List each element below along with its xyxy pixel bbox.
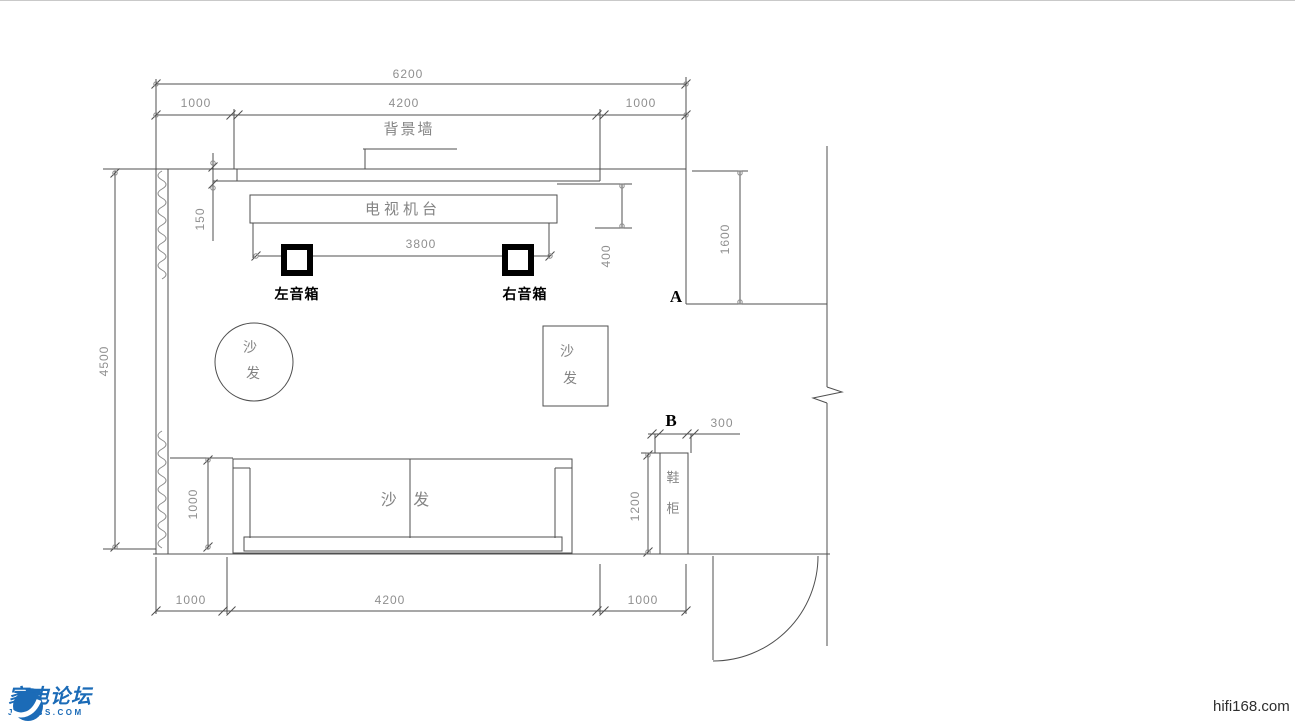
floor-plan-page: 6200 1000 4200 1000 4500 150 3800 400 16… bbox=[0, 0, 1295, 725]
dim-bgwall-offset: 150 bbox=[193, 207, 207, 230]
label-main-sofa: 沙 发 bbox=[381, 491, 435, 509]
label-background-wall: 背景墙 bbox=[383, 121, 434, 138]
dim-bottom-left: 1000 bbox=[176, 593, 207, 607]
dim-sofa-depth: 1000 bbox=[186, 489, 200, 520]
label-square-sofa-2: 发 bbox=[563, 370, 577, 386]
dim-speaker-offset: 400 bbox=[599, 244, 613, 267]
label-shoe-cabinet-2: 柜 bbox=[666, 501, 679, 516]
dim-top-right: 1000 bbox=[626, 96, 657, 110]
dim-bottom-center: 4200 bbox=[375, 593, 406, 607]
label-shoe-cabinet-1: 鞋 bbox=[666, 470, 679, 485]
dim-top-center: 4200 bbox=[389, 96, 420, 110]
watermark-text: hifi168.com bbox=[1213, 698, 1290, 715]
dim-cabinet-width: 300 bbox=[710, 416, 733, 430]
wall-break-symbol bbox=[813, 387, 842, 403]
jd-bbs-swirl-icon bbox=[8, 687, 48, 725]
round-sofa bbox=[215, 323, 293, 401]
marker-a: A bbox=[670, 287, 683, 306]
dim-cabinet-length: 1200 bbox=[628, 491, 642, 522]
label-square-sofa-1: 沙 bbox=[560, 343, 574, 359]
dim-room-depth: 4500 bbox=[97, 346, 111, 377]
label-round-sofa-1: 沙 bbox=[243, 339, 257, 355]
dim-speaker-span: 3800 bbox=[406, 237, 437, 251]
jd-bbs-logo: 家电论坛 JD-BBS.COM bbox=[8, 687, 92, 717]
label-round-sofa-2: 发 bbox=[246, 365, 260, 381]
dimension-ticks bbox=[111, 80, 743, 616]
main-sofa-seat bbox=[244, 537, 562, 551]
window-symbol bbox=[158, 431, 166, 548]
door-swing-arc bbox=[713, 556, 818, 661]
window-symbol bbox=[158, 171, 166, 279]
right-speaker bbox=[505, 247, 531, 273]
floor-plan-canvas: 6200 1000 4200 1000 4500 150 3800 400 16… bbox=[0, 1, 1295, 725]
dim-bottom-right: 1000 bbox=[628, 593, 659, 607]
left-speaker bbox=[284, 247, 310, 273]
dim-total-width: 6200 bbox=[393, 67, 424, 81]
label-tv-stand: 电视机台 bbox=[365, 201, 441, 218]
marker-b: B bbox=[665, 411, 676, 430]
square-sofa bbox=[543, 326, 608, 406]
label-right-speaker: 右音箱 bbox=[502, 286, 548, 302]
label-left-speaker: 左音箱 bbox=[274, 286, 320, 302]
dimension-lines bbox=[103, 84, 748, 614]
dim-passage-depth: 1600 bbox=[718, 224, 732, 255]
dim-top-left: 1000 bbox=[181, 96, 212, 110]
